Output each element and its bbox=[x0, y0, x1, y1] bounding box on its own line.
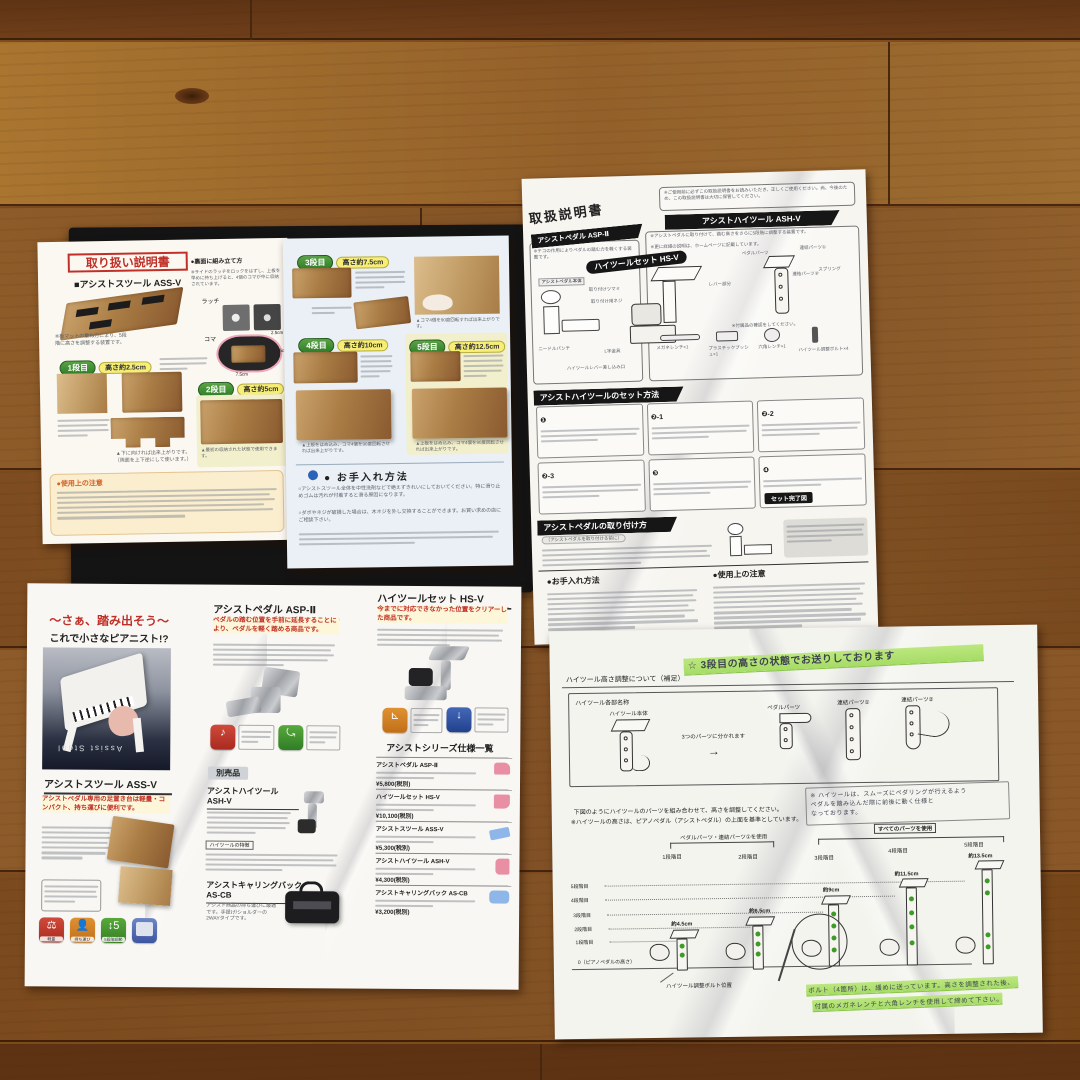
set-step-cell: ❸ bbox=[648, 456, 756, 511]
height-3: 約9cm bbox=[823, 885, 840, 893]
part1-arm bbox=[779, 713, 811, 723]
group1-bracket bbox=[670, 841, 774, 848]
pedal-photo-foot bbox=[225, 696, 261, 717]
pedal-body-label: アシストペダル本体 bbox=[538, 277, 585, 286]
step4-bigphoto bbox=[296, 389, 392, 440]
caption-lines bbox=[309, 731, 337, 744]
bolt-dot bbox=[755, 942, 760, 947]
stool-slot bbox=[108, 300, 131, 310]
body-text-line bbox=[464, 369, 502, 372]
care-title: ● お手入れ方法 bbox=[324, 468, 409, 484]
hiset-photo-top bbox=[428, 646, 470, 660]
tool-stage-4 bbox=[879, 878, 936, 973]
renketsu1-label: 連結パーツ① bbox=[800, 244, 827, 251]
step1-photo bbox=[57, 373, 108, 414]
piano-caption: Assist Stool bbox=[56, 743, 122, 752]
flip-photo bbox=[110, 417, 185, 448]
step5-bigphoto bbox=[412, 387, 508, 438]
hiset-lead: 今までに対応できなかった位置をクリアーした商品です。 bbox=[377, 606, 507, 624]
badge-label: 5段階調節 bbox=[102, 937, 125, 942]
step1-photo bbox=[122, 372, 183, 413]
plate-hole bbox=[624, 736, 628, 740]
step1-caption bbox=[159, 354, 207, 370]
step5-photo bbox=[410, 351, 460, 382]
hiset-photo-base bbox=[405, 686, 447, 700]
hiset-body-text bbox=[377, 626, 503, 647]
attach-sub: （アシストペダルを取り付ける前に） bbox=[542, 534, 627, 544]
tool-pedal bbox=[726, 943, 746, 960]
part-main-drawing bbox=[607, 719, 654, 778]
bolt-dot bbox=[984, 890, 989, 895]
bolt-dot bbox=[755, 952, 760, 957]
hiset-photo bbox=[403, 646, 473, 702]
bolt-dot bbox=[679, 944, 684, 949]
step2-photo bbox=[200, 399, 283, 444]
lkanagu-label: L字金具 bbox=[604, 348, 620, 354]
body-text-line bbox=[463, 364, 503, 367]
spec-detail bbox=[375, 899, 475, 907]
spring-label: スプリング bbox=[818, 266, 841, 273]
height-2: 約6.5cm bbox=[749, 906, 770, 914]
body-text-line bbox=[360, 360, 391, 363]
handwritten-top-note: ☆ 3段目の高さの状態でお送りしております bbox=[687, 642, 997, 672]
spec-price: ¥3,200(税別) bbox=[375, 907, 511, 917]
latch-dot bbox=[264, 314, 271, 321]
part1-label: ペダルパーツ bbox=[767, 703, 800, 711]
bag-handle bbox=[299, 881, 323, 897]
tool-tower bbox=[906, 887, 918, 965]
plate-hole bbox=[850, 725, 854, 729]
part2-label: 連結パーツ① bbox=[837, 698, 869, 706]
care-text-1: ○アシストスツール全体を中性洗剤などで絶えずきれいにしておいてください。特に滑り… bbox=[298, 484, 504, 500]
body-text-line bbox=[207, 816, 288, 819]
stool-slot bbox=[142, 295, 165, 305]
body-text-line bbox=[764, 483, 821, 487]
bolt-dot bbox=[909, 924, 914, 929]
body-text-line bbox=[355, 281, 405, 284]
part1-drawing bbox=[769, 713, 814, 758]
body-text-line bbox=[44, 900, 75, 903]
height-4: 約11.5cm bbox=[895, 869, 919, 877]
set-step-cell: ❷-2 bbox=[757, 397, 865, 452]
hitool-photo-clamp bbox=[298, 819, 316, 833]
spec-name: アシストペダル ASP-Ⅱ bbox=[376, 758, 512, 770]
pedal-photo bbox=[226, 669, 312, 722]
bag-photo bbox=[283, 879, 345, 927]
body-text-line bbox=[787, 533, 864, 538]
step-number: ❸ bbox=[652, 470, 658, 477]
tool-tower bbox=[752, 925, 764, 969]
dim-label: 2.5cm bbox=[271, 330, 283, 335]
bolt-dot bbox=[984, 878, 989, 883]
step1-caption bbox=[57, 416, 109, 437]
part2-drawing bbox=[845, 708, 861, 760]
plate-hole bbox=[784, 727, 788, 731]
body-text-line bbox=[653, 480, 752, 485]
pedal-body-text bbox=[213, 641, 335, 667]
latch-dot bbox=[232, 314, 240, 322]
body-text-line bbox=[762, 426, 858, 431]
dim-label: 7.5cm bbox=[236, 372, 248, 377]
body-text-line bbox=[413, 724, 428, 727]
body-text-line bbox=[361, 370, 391, 373]
tool-cap bbox=[899, 878, 929, 887]
notice-text: ※ご使用前に必ずこの取扱説明書をお読みいただき、正しくご使用ください。尚、今後の… bbox=[664, 185, 850, 201]
body-text-line bbox=[651, 424, 750, 429]
bolt-dot bbox=[909, 940, 914, 945]
body-text-line bbox=[763, 477, 862, 482]
easy-press-caption bbox=[238, 725, 274, 750]
body-text-line bbox=[42, 851, 106, 854]
plate-hole bbox=[909, 710, 913, 714]
spec-detail bbox=[376, 771, 476, 779]
body-text-line bbox=[541, 439, 598, 443]
body-text-line bbox=[42, 846, 111, 849]
step4-caption: ▲上板をはめ込み、コマ4個を90度回転させれば出来上がりです。 bbox=[302, 441, 392, 453]
body-text-line bbox=[160, 362, 207, 365]
body-text-line bbox=[541, 432, 637, 437]
body-text-line bbox=[653, 492, 710, 496]
handwritten-side-box: ※ ハイツールは、スムーズにペダリングが行えるよう ペダルを踏み込んだ際に前後に… bbox=[805, 781, 1010, 825]
manual2-title: 取扱説明書 bbox=[528, 199, 605, 228]
group2-label: すべてのパーツを使用 bbox=[874, 823, 936, 834]
body-text-line bbox=[207, 832, 256, 835]
body-text-line bbox=[762, 421, 861, 426]
set-steps-grid: ❶ ❷-1 ❷-2 ❷-3 ❸ ❹ セット完了図 bbox=[536, 397, 867, 514]
five-step-icon: ↕5 5段階調節 bbox=[101, 918, 126, 943]
caution-title: ●使用上の注意 bbox=[57, 475, 277, 489]
scale-glyph: ⚖ bbox=[39, 920, 64, 931]
needle-label: ニードルパンチ bbox=[538, 346, 570, 353]
step3-photo bbox=[292, 268, 351, 299]
body-text-line bbox=[786, 523, 864, 528]
stool-slot bbox=[76, 307, 99, 317]
caution-text bbox=[57, 488, 277, 520]
koma-label: コマ bbox=[204, 334, 216, 343]
chart-glyph: ⊾ bbox=[382, 711, 407, 722]
step-text bbox=[541, 427, 640, 442]
step-text bbox=[651, 424, 750, 439]
body-text-line bbox=[205, 863, 336, 866]
care2-title: ●お手入れ方法 bbox=[547, 575, 600, 587]
spec-icon-bag bbox=[489, 891, 509, 904]
plate-hole bbox=[850, 749, 854, 753]
hitool-body-text bbox=[207, 809, 291, 835]
body-text-line bbox=[205, 858, 333, 861]
step-text bbox=[762, 421, 861, 436]
note-sheet: ☆ 3段目の高さの状態でお送りしております ハイツール高さ調整について（補足） … bbox=[549, 625, 1043, 1040]
piano-photo: Assist Stool bbox=[42, 647, 171, 770]
height-5: 約13.5cm bbox=[968, 851, 992, 859]
hiset-column bbox=[662, 281, 676, 323]
latch-photo bbox=[223, 305, 250, 331]
axis-1: 1段階目 bbox=[575, 939, 593, 946]
body-text-line bbox=[477, 718, 504, 721]
bolt-dot bbox=[908, 896, 913, 901]
body-text-line bbox=[58, 429, 110, 432]
body-text-line bbox=[299, 535, 493, 540]
body-text-line bbox=[44, 895, 97, 898]
body-text-line bbox=[762, 432, 819, 436]
body-text-line bbox=[651, 429, 747, 434]
set-step-cell: ❷-3 bbox=[537, 460, 645, 515]
hand-shape bbox=[423, 294, 453, 310]
body-text-line bbox=[312, 312, 335, 315]
pedal-manual-sheet: ※ご使用前に必ずこの取扱説明書をお読みいただき、正しくご使用ください。尚、今後の… bbox=[522, 169, 879, 644]
care-bullet bbox=[308, 470, 318, 480]
caption-lines bbox=[413, 714, 439, 727]
step4-row: 4段目高さ約10cm bbox=[298, 334, 389, 353]
body-text-line bbox=[309, 731, 337, 734]
body-text-line bbox=[44, 890, 96, 893]
axis-5: 5段階目 bbox=[571, 883, 589, 890]
body-text-line bbox=[463, 354, 503, 357]
stool-section-title: アシストスツール ASS-V bbox=[44, 775, 172, 795]
body-text-line bbox=[355, 276, 404, 279]
renketsu2-label: 連結パーツ② bbox=[792, 271, 819, 278]
hitool-photo bbox=[296, 791, 330, 837]
body-text-line bbox=[58, 434, 88, 437]
body-text-line bbox=[376, 835, 476, 838]
set-step-cell: ❷-1 bbox=[647, 401, 755, 456]
body-text-line bbox=[241, 735, 270, 738]
body-text-line bbox=[477, 723, 493, 726]
body-text-line bbox=[651, 436, 708, 440]
adjust-caption bbox=[410, 708, 442, 733]
stool-note-text bbox=[44, 885, 98, 903]
tool-pedal bbox=[955, 937, 975, 954]
tool-tower bbox=[676, 939, 687, 971]
feature-box-title: ハイツールの特徴 bbox=[206, 841, 254, 850]
step2-panel: ▲最初の収納された状態で使用できます。 bbox=[196, 394, 287, 468]
person-glyph: 👤 bbox=[70, 921, 95, 932]
headline-2: これで小さなピアニスト!? bbox=[43, 629, 175, 645]
body-text-line bbox=[57, 515, 185, 520]
spec-price: ¥4,300(税別) bbox=[375, 875, 511, 885]
plate-hole bbox=[624, 758, 628, 762]
piano-leg bbox=[133, 718, 144, 753]
bolt-dot bbox=[985, 944, 990, 949]
notice-box: ※ご使用前に必ずこの取扱説明書をお読みいただき、正しくご使用ください。尚、今後の… bbox=[659, 182, 856, 211]
flip-caption: ▲下に向ければ出来上がりです。 （両面を上下逆にして使います。） bbox=[103, 449, 203, 464]
plate-hole bbox=[850, 737, 854, 741]
plate-hole bbox=[849, 713, 853, 717]
body-text-line bbox=[377, 633, 499, 636]
lever-label: レバー部分 bbox=[709, 281, 732, 288]
stage-label-3: 3段階目 bbox=[814, 853, 834, 861]
instruction-2: ※ハイツールの高さは、ピアノペダル（アシストペダル）の上面を基準としています。 bbox=[571, 814, 802, 826]
body-text-line bbox=[57, 419, 109, 422]
axis-4: 4段階目 bbox=[571, 897, 589, 904]
part-item-1: 六角レンチ×1 bbox=[758, 344, 786, 351]
parts-names-box: ハイツール各部名称 ハイツール本体 3つのパーツに分かれます → ペダルパーツ … bbox=[568, 687, 999, 787]
body-text-line bbox=[312, 306, 352, 309]
pedal-lead: ペダルの踏む位置を手前に延長することにより、ペダルを軽く踏める商品です。 bbox=[213, 617, 339, 635]
bag-stripe bbox=[293, 901, 331, 909]
spec-name: アシストハイツール ASH-V bbox=[375, 854, 511, 866]
body-text-line bbox=[548, 619, 698, 626]
body-text-line bbox=[786, 528, 862, 533]
height-1: 約4.5cm bbox=[671, 919, 692, 927]
attach-note-box bbox=[783, 517, 868, 557]
step-text bbox=[542, 483, 641, 498]
step3-note2 bbox=[312, 304, 352, 315]
body-text-line bbox=[361, 375, 380, 378]
split-note: 3つのパーツに分かれます bbox=[682, 732, 746, 741]
hiset-pedal bbox=[631, 303, 662, 326]
body-text-line bbox=[355, 270, 405, 273]
body-text-line bbox=[714, 618, 861, 625]
step-text bbox=[653, 480, 752, 495]
bolt-dot bbox=[755, 932, 760, 937]
plate-hole bbox=[779, 297, 783, 301]
down-caption bbox=[474, 707, 508, 732]
main-wire bbox=[632, 755, 650, 771]
body-text-line bbox=[160, 367, 188, 370]
wrench-icon bbox=[660, 334, 700, 341]
plate-hole bbox=[624, 747, 628, 751]
hitool-photo-cap bbox=[304, 791, 324, 803]
spec-row: アシストスツール ASS-V ¥5,300(税別) bbox=[376, 821, 512, 852]
photo-icon bbox=[132, 918, 157, 943]
intro-note: ※板マットの重ね方により、5段階に高さを調整する装置です。 bbox=[55, 333, 129, 347]
tool-pedal bbox=[879, 939, 899, 956]
plate-hole bbox=[778, 273, 782, 277]
spec-price: ¥10,100(税別) bbox=[376, 811, 512, 821]
part1-plate bbox=[779, 723, 792, 749]
body-text-line bbox=[241, 741, 258, 744]
wood-knot bbox=[175, 88, 209, 104]
axis-3: 3段階目 bbox=[573, 912, 591, 919]
flip-caption-2: （両面を上下逆にして使います。） bbox=[115, 456, 192, 463]
split-arrow: → bbox=[708, 744, 720, 758]
lever-glyph: ⤿ bbox=[278, 728, 303, 739]
step-text bbox=[763, 477, 862, 487]
attach-drawing bbox=[723, 522, 776, 563]
caution-panel: ●使用上の注意 bbox=[49, 470, 284, 536]
spec-row: ハイツールセット HS-V ¥10,100(税別) bbox=[376, 789, 512, 820]
attach-note-text bbox=[786, 523, 864, 543]
body-text-line bbox=[41, 857, 82, 860]
manual-title-box: 取り扱い説明書 bbox=[68, 252, 188, 273]
stool-manual-right-page: 3段目高さ約7.5cm ▲コマ4個を90度回転すれば出来上がりです。 4段目高さ… bbox=[283, 235, 514, 568]
step4-note bbox=[360, 352, 392, 378]
lightweight-icon: ⚖ 軽量 bbox=[39, 917, 64, 942]
latch-photo bbox=[254, 304, 281, 330]
body-text-line bbox=[159, 357, 207, 360]
body-text-line bbox=[207, 826, 286, 829]
pedal-body-drawing bbox=[543, 306, 560, 334]
part3-wire bbox=[918, 709, 952, 739]
caption-lines bbox=[477, 713, 505, 726]
step-number: ❶ bbox=[540, 417, 546, 424]
body-text-line bbox=[42, 836, 111, 839]
photo-note: ※サイドのラッチをロックをはずし、上板を早めに持ち上げると、4個のコマが中に収納… bbox=[191, 268, 283, 288]
attach-knob bbox=[727, 523, 743, 535]
body-text-line bbox=[309, 736, 336, 739]
spec-name: ハイツールセット HS-V bbox=[376, 790, 512, 802]
spec-row: アシストハイツール ASH-V ¥4,300(税別) bbox=[375, 853, 511, 884]
body-text-line bbox=[377, 639, 502, 642]
body-text-line bbox=[464, 375, 487, 378]
feature-text bbox=[205, 851, 337, 872]
step-number: ❹ bbox=[763, 467, 769, 474]
spec-price: ¥5,800(税別) bbox=[376, 779, 512, 789]
step3-note bbox=[355, 268, 405, 289]
body-text-line bbox=[241, 730, 271, 733]
part3-label: 連結パーツ② bbox=[901, 695, 933, 703]
body-text-line bbox=[213, 658, 328, 661]
stool-manual-left-page: 取り扱い説明書 ●裏面に組み立て方 ■アシストスツール ASS-V ※サイドのラ… bbox=[37, 238, 292, 544]
body-text-line bbox=[206, 853, 338, 856]
body-text-line bbox=[44, 885, 98, 888]
tool-cap bbox=[821, 895, 851, 904]
step-number: ❷-3 bbox=[542, 473, 554, 480]
tool-tower bbox=[982, 869, 994, 964]
adjust-icon: ⊾ bbox=[382, 708, 407, 733]
body-text-line bbox=[360, 355, 392, 358]
spec-list-title: アシストシリーズ仕様一覧 bbox=[386, 741, 516, 755]
hiset-top-plate bbox=[650, 266, 702, 281]
body-text-line bbox=[541, 427, 640, 432]
step5-note bbox=[463, 352, 503, 378]
lever-caption bbox=[306, 725, 340, 750]
handwritten-bottom-2: 付属のメガネレンチと六角レンチを使用して締めて下さい。 bbox=[814, 992, 1034, 1011]
spec-row: アシストキャリングバック AS-CB ¥3,200(税別) bbox=[375, 885, 511, 918]
bolt-icon bbox=[812, 327, 818, 343]
body-text-line bbox=[213, 653, 334, 656]
body-text-line bbox=[542, 562, 641, 567]
part-main-label: ハイツール本体 bbox=[609, 709, 647, 718]
part3-drawing bbox=[905, 705, 958, 760]
care2-text bbox=[547, 586, 698, 631]
tsumami-label: 取り付けツマミ bbox=[589, 286, 621, 293]
badge-label: 軽量 bbox=[40, 936, 63, 941]
body-text-line bbox=[360, 365, 392, 368]
stool-slot bbox=[89, 319, 112, 329]
bag-body-text: アシスト商品の持ち運びに最適です。手提げ/ショルダーの2WAYタイプです。 bbox=[206, 903, 276, 923]
stool-lead: アシストペダル専用の足置き台は軽量・コンパクト、持ち運びに便利です。 bbox=[42, 795, 170, 813]
main-cap bbox=[611, 719, 651, 732]
bolt-dot bbox=[909, 910, 914, 915]
bush-icon bbox=[716, 331, 738, 342]
carry-icon: 👤 持ち運び bbox=[70, 918, 95, 943]
stool-body bbox=[41, 823, 111, 859]
floor-seam bbox=[540, 1044, 542, 1080]
floor-plank bbox=[0, 0, 1080, 40]
body-text-line bbox=[207, 821, 290, 824]
headline-1: 〜さぁ、踏み出そう〜 bbox=[41, 611, 177, 629]
stool-photo-2 bbox=[118, 866, 173, 906]
step3-caption: ▲コマ4個を90度回転すれば出来上がりです。 bbox=[416, 317, 500, 329]
set-step-cell: ❶ bbox=[536, 404, 644, 459]
lever-principle-icon: ⤿ bbox=[278, 725, 303, 750]
attach-arm bbox=[744, 544, 772, 555]
step4-photo bbox=[293, 352, 357, 384]
pedal-arm-drawing bbox=[562, 319, 600, 332]
spec-icon-pink bbox=[494, 795, 510, 809]
body-text-line bbox=[213, 648, 331, 651]
sheet-heading: ハイツール高さ調整について（補足） bbox=[566, 674, 685, 686]
body-text-line bbox=[542, 483, 641, 488]
tool-cap bbox=[669, 929, 699, 938]
body-text-line bbox=[413, 714, 439, 717]
care-text-extra bbox=[299, 528, 499, 546]
stage-label-5: 5段階目 bbox=[964, 840, 984, 848]
hitool-plate-drawing bbox=[774, 267, 789, 313]
divider bbox=[296, 462, 504, 466]
koma-block bbox=[231, 345, 265, 363]
